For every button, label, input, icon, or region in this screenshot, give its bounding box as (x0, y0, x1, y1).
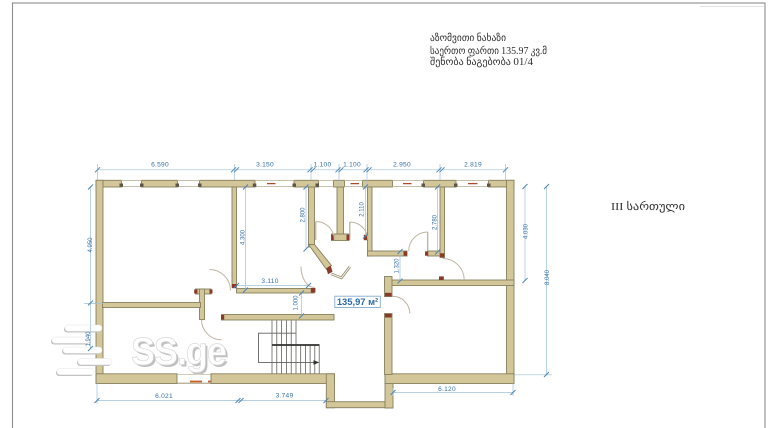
svg-text:III სართული: III სართული (611, 200, 685, 213)
svg-text:6.120: 6.120 (438, 386, 456, 393)
svg-text:6.021: 6.021 (155, 393, 173, 400)
svg-text:2.110: 2.110 (360, 202, 366, 217)
svg-text:4.300: 4.300 (241, 229, 247, 245)
svg-text:4.030: 4.030 (524, 223, 530, 239)
svg-text:2.780: 2.780 (433, 214, 439, 230)
svg-text:2.819: 2.819 (464, 162, 482, 169)
svg-text:135,97 м²: 135,97 м² (337, 296, 378, 307)
svg-text:2.950: 2.950 (393, 162, 411, 169)
svg-text:აზომვითი ნახაზი: აზომვითი ნახაზი (430, 32, 506, 44)
svg-text:1.100: 1.100 (343, 162, 361, 169)
svg-text:2.800: 2.800 (301, 207, 307, 223)
svg-text:3.749: 3.749 (276, 393, 294, 400)
svg-text:3.150: 3.150 (256, 162, 274, 169)
svg-text:6.590: 6.590 (151, 162, 169, 169)
svg-text:4.950: 4.950 (88, 237, 94, 253)
svg-text:1.940: 1.940 (86, 331, 92, 347)
svg-text:3.110: 3.110 (261, 278, 278, 285)
svg-text:1.100: 1.100 (314, 162, 332, 169)
svg-text:1.000: 1.000 (294, 295, 300, 311)
svg-text:8.040: 8.040 (545, 269, 551, 285)
svg-text:შენობა ნაგებობა 01/4: შენობა ნაგებობა 01/4 (430, 56, 533, 68)
svg-text:1.320: 1.320 (395, 258, 401, 274)
